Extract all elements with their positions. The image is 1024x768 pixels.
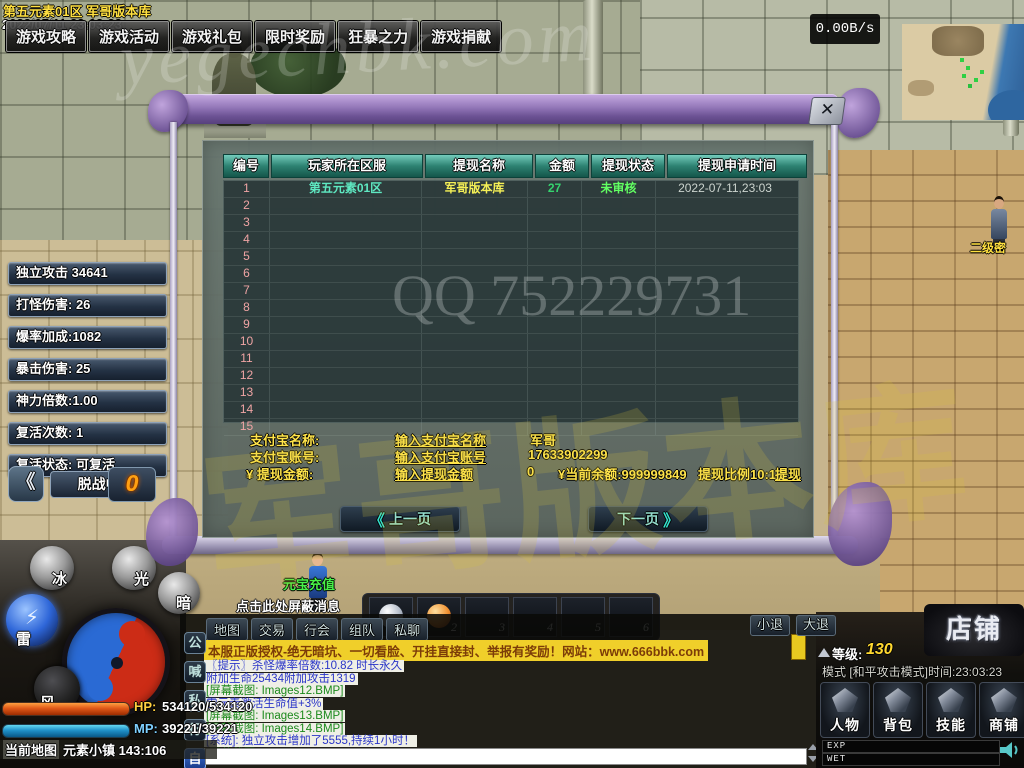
table-row[interactable]: 3 bbox=[224, 215, 798, 232]
cell-status bbox=[582, 317, 656, 333]
chat-tab[interactable]: 私聊 bbox=[386, 618, 428, 641]
cell-zone bbox=[270, 215, 422, 231]
withdraw-table: 1 第五元素01区 军哥版本库 27 未审核 2022-07-11,23:03 … bbox=[223, 180, 799, 423]
cell-row-number: 13 bbox=[224, 385, 270, 401]
next-arrow-icon: 》 bbox=[663, 507, 679, 531]
cell-row-number: 3 bbox=[224, 215, 270, 231]
dark-orb-label: 暗 bbox=[176, 592, 191, 613]
game-screen: 元宝充值 点击此处屏蔽消息 二级密 第五元素01区 军哥版本库 2022/07/… bbox=[0, 0, 1024, 768]
mp-bar bbox=[2, 724, 130, 738]
cell-withdraw-name bbox=[422, 385, 528, 401]
panel-button-icon bbox=[938, 688, 964, 712]
cell-zone: 第五元素01区 bbox=[270, 181, 422, 197]
cell-amount bbox=[528, 249, 582, 265]
chat-tab[interactable]: 组队 bbox=[341, 618, 383, 641]
withdraw-amount-value: 0 bbox=[527, 464, 534, 479]
chat-line: 〖提示〗杀怪爆率倍数:10.82 时长永久 bbox=[204, 656, 417, 669]
cell-zone bbox=[270, 198, 422, 214]
cell-row-number: 10 bbox=[224, 334, 270, 350]
cell-amount bbox=[528, 198, 582, 214]
lightning-icon: ⚡ bbox=[6, 594, 58, 642]
chat-tab[interactable]: 地图 bbox=[206, 618, 248, 641]
cell-withdraw-name bbox=[422, 334, 528, 350]
thunder-orb[interactable]: ⚡ bbox=[6, 594, 58, 646]
stat-bar: 打怪伤害: 26 bbox=[8, 294, 167, 317]
wet-bar: WET bbox=[822, 753, 1000, 766]
chat-channel-button[interactable]: 公 bbox=[184, 632, 206, 654]
cell-apply-time bbox=[656, 283, 794, 299]
panel-button[interactable]: 技能 bbox=[926, 682, 976, 738]
cell-status bbox=[582, 385, 656, 401]
table-row[interactable]: 1 第五元素01区 军哥版本库 27 未审核 2022-07-11,23:03 bbox=[224, 181, 798, 198]
panel-button-icon bbox=[832, 688, 858, 712]
cell-apply-time bbox=[656, 198, 794, 214]
cell-amount bbox=[528, 300, 582, 316]
cell-apply-time bbox=[656, 368, 794, 384]
cell-amount bbox=[528, 334, 582, 350]
cell-apply-time bbox=[656, 300, 794, 316]
cell-amount bbox=[528, 351, 582, 367]
bottom-right-panel: 店铺 等级: 130 模式 [和平攻击模式]时间:23:03:23 人物 背包 … bbox=[816, 612, 1024, 768]
exp-bar: EXP bbox=[822, 740, 1000, 753]
menu-button[interactable]: 限时奖励 bbox=[255, 21, 335, 52]
table-row[interactable]: 2 bbox=[224, 198, 798, 215]
chat-tab[interactable]: 行会 bbox=[296, 618, 338, 641]
cell-apply-time bbox=[656, 385, 794, 401]
cell-status bbox=[582, 266, 656, 282]
cell-amount bbox=[528, 368, 582, 384]
table-row[interactable]: 7 bbox=[224, 283, 798, 300]
cell-zone bbox=[270, 232, 422, 248]
stat-bar: 独立攻击 34641 bbox=[8, 262, 167, 285]
table-row[interactable]: 12 bbox=[224, 368, 798, 385]
cell-zone bbox=[270, 385, 422, 401]
top-menu: 游戏攻略游戏活动游戏礼包限时奖励狂暴之力游戏捐献 bbox=[6, 21, 501, 52]
withdraw-amount-input[interactable]: 输入提现金额 bbox=[395, 464, 473, 483]
panel-expand-icon[interactable] bbox=[818, 648, 830, 657]
stats-panel: 独立攻击 34641打怪伤害: 26爆率加成:1082暴击伤害: 25神力倍数:… bbox=[8, 262, 167, 486]
cell-withdraw-name bbox=[422, 402, 528, 418]
chat-window: 地图交易行会组队私聊 本服正版授权-绝无暗坑、一切看脸、开挂直接封、举报有奖励！… bbox=[180, 614, 816, 768]
cell-status bbox=[582, 351, 656, 367]
cell-amount bbox=[528, 215, 582, 231]
panel-button[interactable]: 商铺 bbox=[979, 682, 1024, 738]
speaker-icon[interactable] bbox=[998, 740, 1022, 765]
dialog-rail-left bbox=[170, 122, 177, 546]
table-header-cell: 提现名称 bbox=[425, 154, 533, 178]
cell-zone bbox=[270, 317, 422, 333]
collapse-arrow-button[interactable]: 《 bbox=[8, 466, 44, 502]
cell-withdraw-name bbox=[422, 215, 528, 231]
cell-apply-time bbox=[656, 317, 794, 333]
soft-logout-button[interactable]: 小退 bbox=[750, 615, 790, 636]
minimap[interactable] bbox=[902, 24, 1024, 120]
mp-value: 39221/39221 bbox=[162, 721, 238, 736]
cell-zone bbox=[270, 351, 422, 367]
table-row[interactable]: 13 bbox=[224, 385, 798, 402]
cell-zone bbox=[270, 283, 422, 299]
table-row[interactable]: 6 bbox=[224, 266, 798, 283]
dialog-rail-right bbox=[831, 122, 838, 546]
cell-withdraw-name bbox=[422, 198, 528, 214]
cell-apply-time bbox=[656, 351, 794, 367]
cell-apply-time bbox=[656, 266, 794, 282]
dialog-top-ribbon bbox=[166, 94, 838, 124]
chat-line: [屏幕截图: Images12.BMP] bbox=[204, 681, 417, 694]
server-title: 第五元素01区 军哥版本库 bbox=[3, 1, 151, 20]
map-label: 当前地图 bbox=[3, 740, 59, 759]
cell-withdraw-name bbox=[422, 317, 528, 333]
cell-row-number: 2 bbox=[224, 198, 270, 214]
panel-button[interactable]: 人物 bbox=[820, 682, 870, 738]
hard-logout-button[interactable]: 大退 bbox=[796, 615, 836, 636]
cell-withdraw-name bbox=[422, 283, 528, 299]
cell-status bbox=[582, 300, 656, 316]
cell-apply-time: 2022-07-11,23:03 bbox=[656, 181, 794, 197]
panel-button-icon bbox=[991, 688, 1017, 712]
table-header-cell: 玩家所在区服 bbox=[271, 154, 423, 178]
menu-button[interactable]: 游戏礼包 bbox=[172, 21, 252, 52]
chat-tab-row: 地图交易行会组队私聊 bbox=[206, 618, 428, 641]
table-header-cell: 提现申请时间 bbox=[667, 154, 807, 178]
panel-button-icon bbox=[885, 688, 911, 712]
table-header-cell: 提现状态 bbox=[591, 154, 665, 178]
cell-zone bbox=[270, 249, 422, 265]
table-row[interactable]: 9 bbox=[224, 317, 798, 334]
cell-row-number: 6 bbox=[224, 266, 270, 282]
cell-apply-time bbox=[656, 334, 794, 350]
cell-withdraw-name bbox=[422, 249, 528, 265]
taiji-eye bbox=[111, 657, 123, 669]
close-icon[interactable]: ✕ bbox=[808, 97, 846, 125]
stat-bar: 暴击伤害: 25 bbox=[8, 358, 167, 381]
cell-status bbox=[582, 232, 656, 248]
cell-zone bbox=[270, 300, 422, 316]
cell-row-number: 4 bbox=[224, 232, 270, 248]
menu-button[interactable]: 游戏捐献 bbox=[421, 21, 501, 52]
attack-mode-line: 模式 [和平攻击模式]时间:23:03:23 bbox=[822, 663, 1002, 680]
hp-value: 534120/534120 bbox=[162, 699, 252, 714]
cell-row-number: 8 bbox=[224, 300, 270, 316]
minimap-sea bbox=[988, 90, 1024, 120]
cell-amount bbox=[528, 402, 582, 418]
mp-label: MP: bbox=[134, 721, 158, 736]
cell-amount bbox=[528, 317, 582, 333]
npc-name-recharge[interactable]: 元宝充值 bbox=[283, 574, 335, 593]
cell-withdraw-name: 军哥版本库 bbox=[422, 181, 528, 197]
table-row[interactable]: 8 bbox=[224, 300, 798, 317]
table-header-cell: 金额 bbox=[535, 154, 589, 178]
cell-row-number: 1 bbox=[224, 181, 270, 197]
current-map-bar: 当前地图 元素小镇 143:106 bbox=[0, 740, 217, 759]
taiji-red-lobe bbox=[119, 621, 145, 647]
menu-button[interactable]: 游戏攻略 bbox=[6, 21, 86, 52]
withdraw-button[interactable]: 提现 bbox=[775, 464, 801, 483]
cell-withdraw-name bbox=[422, 232, 528, 248]
cell-zone bbox=[270, 334, 422, 350]
npc-name-right[interactable]: 二级密 bbox=[970, 239, 1006, 256]
menu-button[interactable]: 狂暴之力 bbox=[338, 21, 418, 52]
chat-input[interactable] bbox=[205, 748, 807, 765]
withdraw-amount-label: ¥ 提现金额: bbox=[246, 464, 313, 483]
level-label: 等级: bbox=[832, 644, 862, 663]
cell-amount bbox=[528, 283, 582, 299]
prev-page-button[interactable]: 《 上一页 bbox=[340, 506, 460, 532]
cell-status bbox=[582, 198, 656, 214]
network-speed: 0.00B/s bbox=[810, 14, 880, 44]
table-row[interactable]: 11 bbox=[224, 351, 798, 368]
table-row[interactable]: 14 bbox=[224, 402, 798, 419]
prev-arrow-icon: 《 bbox=[369, 507, 385, 531]
cell-apply-time bbox=[656, 232, 794, 248]
map-name-coords: 元素小镇 143:106 bbox=[63, 740, 166, 759]
next-page-button[interactable]: 下一页 》 bbox=[588, 506, 708, 532]
hp-bar bbox=[2, 702, 130, 716]
cell-status bbox=[582, 368, 656, 384]
cell-withdraw-name bbox=[422, 351, 528, 367]
stone-pillar bbox=[583, 0, 603, 96]
panel-button[interactable]: 背包 bbox=[873, 682, 923, 738]
cell-amount bbox=[528, 385, 582, 401]
cell-withdraw-name bbox=[422, 300, 528, 316]
cell-status bbox=[582, 402, 656, 418]
cell-status bbox=[582, 249, 656, 265]
chat-tab[interactable]: 交易 bbox=[251, 618, 293, 641]
cell-row-number: 7 bbox=[224, 283, 270, 299]
cell-withdraw-name bbox=[422, 368, 528, 384]
minimap-player-dots bbox=[960, 58, 964, 62]
table-header-cell: 编号 bbox=[223, 154, 269, 178]
level-value: 130 bbox=[866, 641, 893, 659]
stat-bar: 神力倍数:1.00 bbox=[8, 390, 167, 413]
cell-zone bbox=[270, 402, 422, 418]
cell-row-number: 12 bbox=[224, 368, 270, 384]
hp-label: HP: bbox=[134, 699, 156, 714]
cell-row-number: 14 bbox=[224, 402, 270, 418]
dialog-bottom-frame bbox=[162, 536, 858, 554]
cell-amount: 27 bbox=[528, 181, 582, 197]
cell-amount bbox=[528, 266, 582, 282]
cell-amount bbox=[528, 232, 582, 248]
minimap-structure bbox=[908, 80, 934, 96]
chat-scroll-thumb[interactable] bbox=[791, 634, 806, 660]
shop-banner[interactable]: 店铺 bbox=[924, 604, 1024, 656]
current-balance: ¥当前余额:999999849 bbox=[558, 464, 687, 483]
cell-row-number: 11 bbox=[224, 351, 270, 367]
cell-status bbox=[582, 215, 656, 231]
minimap-structure bbox=[932, 26, 984, 56]
cell-zone bbox=[270, 368, 422, 384]
block-messages-tip[interactable]: 点击此处屏蔽消息 bbox=[236, 596, 340, 615]
cell-apply-time bbox=[656, 402, 794, 418]
withdraw-table-header: 编号玩家所在区服提现名称金额提现状态提现申请时间 bbox=[223, 154, 797, 178]
table-row[interactable]: 10 bbox=[224, 334, 798, 351]
cell-withdraw-name bbox=[422, 266, 528, 282]
alipay-account-value: 17633902299 bbox=[528, 447, 608, 462]
cell-row-number: 5 bbox=[224, 249, 270, 265]
cell-apply-time bbox=[656, 249, 794, 265]
cell-row-number: 9 bbox=[224, 317, 270, 333]
cell-apply-time bbox=[656, 419, 794, 435]
coin-button[interactable]: 0 bbox=[108, 467, 156, 502]
cell-status bbox=[582, 334, 656, 350]
cell-zone bbox=[270, 266, 422, 282]
panel-button-row: 人物 背包 技能 商铺 bbox=[820, 682, 1024, 738]
table-row[interactable]: 5 bbox=[224, 249, 798, 266]
light-orb-label: 光 bbox=[134, 568, 149, 589]
taiji-blue-lobe bbox=[87, 675, 113, 701]
ice-orb-label: 冰 bbox=[52, 568, 67, 589]
stat-bar: 爆率加成:1082 bbox=[8, 326, 167, 349]
menu-button[interactable]: 游戏活动 bbox=[89, 21, 169, 52]
cell-apply-time bbox=[656, 215, 794, 231]
cell-status: 未审核 bbox=[582, 181, 656, 197]
table-row[interactable]: 4 bbox=[224, 232, 798, 249]
cell-status bbox=[582, 419, 656, 435]
thunder-orb-label: 雷 bbox=[16, 628, 31, 649]
chat-channel-button[interactable]: 喊 bbox=[184, 661, 206, 683]
withdraw-ratio: 提现比例10:1 bbox=[698, 464, 776, 483]
cell-status bbox=[582, 283, 656, 299]
stat-bar: 复活次数: 1 bbox=[8, 422, 167, 445]
